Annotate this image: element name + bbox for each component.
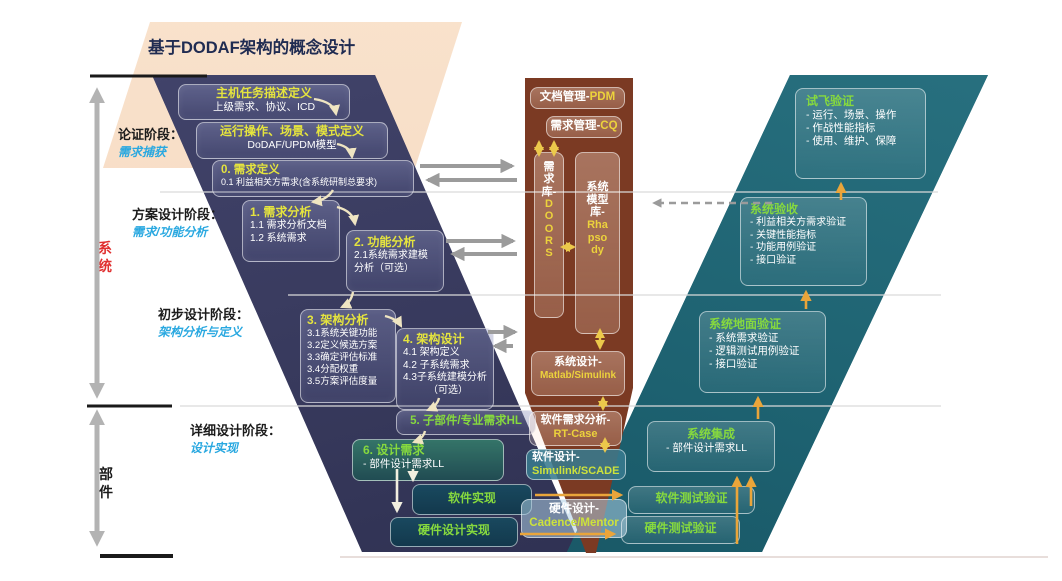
tool-label: 系统设计-: [532, 356, 624, 370]
box-line: - 功能用例验证: [750, 242, 866, 255]
verify-box-flight-test: 试飞验证 - 运行、场景、操作 - 作战性能指标 - 使用、维护、保障: [795, 88, 926, 179]
verify-box-system-ground-verification: 系统地面验证 - 系统需求验证 - 逻辑测试用例验证 - 接口验证: [699, 311, 826, 393]
stage-subtitle: 设计实现: [190, 439, 281, 456]
box-line: （可选）: [403, 385, 493, 398]
box-line: 3.4分配权重: [307, 364, 395, 376]
tool-accent: PDM: [590, 91, 616, 103]
stage-name: 论证阶段：: [118, 124, 183, 143]
box-line: 0.1 利益相关方需求(含系统研制总要求): [221, 177, 413, 188]
flow-box-architecture-analysis: 3. 架构分析 3.1系统关键功能 3.2定义候选方案 3.3确定评估标准 3.…: [300, 309, 396, 403]
tool-label: 软件设计-: [532, 451, 625, 465]
system-level-label: 系统: [98, 240, 115, 275]
tool-box-pdm: 文档管理-PDM: [530, 87, 625, 109]
box-title: 系统集成: [648, 427, 774, 442]
verify-box-system-integration: 系统集成 - 部件设计需求LL: [647, 421, 775, 472]
flow-box-requirement-definition: 0. 需求定义 0.1 利益相关方需求(含系统研制总要求): [212, 160, 414, 197]
tool-label: 硬件设计-: [522, 502, 626, 516]
box-line: DoDAF/UPDM模型: [197, 139, 387, 152]
box-title: 4. 架构设计: [403, 332, 493, 347]
tool-label: 系统模型库-: [585, 181, 610, 219]
verify-box-system-acceptance: 系统验收 - 利益相关方需求验证 - 关键性能指标 - 功能用例验证 - 接口验…: [740, 197, 867, 286]
box-line: 4.2 子系统需求: [403, 360, 493, 373]
stage-label-preliminary-design: 初步设计阶段： 架构分析与定义: [158, 304, 249, 340]
box-line: 3.1系统关键功能: [307, 328, 395, 340]
page-title: 基于DODAF架构的概念设计: [148, 39, 355, 57]
box-title: 主机任务描述定义: [179, 86, 349, 101]
flow-box-requirement-analysis: 1. 需求分析 1.1 需求分析文档 1.2 系统需求: [242, 200, 340, 262]
box-line: 2.1系统需求建模: [354, 250, 443, 263]
component-level-label: 部件: [99, 466, 116, 501]
box-line: - 系统需求验证: [709, 332, 825, 345]
box-title: 硬件设计实现: [391, 523, 517, 538]
stage-name: 初步设计阶段：: [158, 304, 249, 323]
stage-label-detailed-design: 详细设计阶段： 设计实现: [190, 420, 281, 456]
tool-accent: RT-Case: [530, 428, 621, 442]
tool-box-rhapsody: 系统模型库- Rhapsody: [575, 152, 620, 334]
box-title: 2. 功能分析: [354, 235, 443, 250]
flow-box-subcomponent-requirements: 5. 子部件/专业需求HL: [396, 410, 536, 435]
tool-label: 需求管理-: [550, 120, 600, 132]
box-line: - 接口验证: [709, 358, 825, 371]
box-line: - 逻辑测试用例验证: [709, 345, 825, 358]
box-line: 4.1 架构定义: [403, 347, 493, 360]
tool-label: 文档管理-: [540, 91, 590, 103]
box-title: 系统地面验证: [709, 317, 825, 332]
box-title: 5. 子部件/专业需求HL: [397, 414, 535, 428]
box-title: 软件测试验证: [629, 491, 754, 506]
verify-box-software-test: 软件测试验证: [628, 486, 755, 514]
box-title: 试飞验证: [806, 94, 925, 109]
box-title: 0. 需求定义: [221, 163, 413, 177]
tool-box-cq: 需求管理-CQ: [546, 116, 622, 138]
stage-name: 方案设计阶段：: [132, 204, 223, 223]
box-title: 3. 架构分析: [307, 313, 395, 328]
tool-accent: CQ: [600, 120, 617, 132]
stage-name: 详细设计阶段：: [190, 420, 281, 439]
box-title: 1. 需求分析: [250, 205, 339, 220]
tool-box-cadence-mentor: 硬件设计- Cadence/Mentor: [521, 499, 627, 538]
stage-subtitle: 需求/功能分析: [132, 223, 223, 240]
box-line: - 关键性能指标: [750, 230, 866, 243]
tool-accent: Rhapsody: [585, 219, 610, 257]
box-line: - 部件设计需求LL: [648, 442, 774, 455]
box-line: 1.2 系统需求: [250, 233, 339, 246]
flow-box-software-implementation: 软件实现: [412, 484, 532, 515]
tool-accent: DOORS: [542, 198, 557, 260]
box-title: 6. 设计需求: [363, 443, 503, 458]
tool-accent: Cadence/Mentor: [522, 516, 626, 530]
box-title: 硬件测试验证: [622, 521, 739, 536]
flow-box-design-requirements: 6. 设计需求 - 部件设计需求LL: [352, 439, 504, 481]
stage-label-demonstration: 论证阶段： 需求捕获: [118, 124, 183, 160]
tool-box-matlab-simulink: 系统设计- Matlab/Simulink: [531, 351, 625, 396]
tool-accent: Matlab/Simulink: [532, 370, 624, 383]
tool-box-rt-case: 软件需求分析- RT-Case: [529, 411, 622, 446]
box-line: - 运行、场景、操作: [806, 109, 925, 122]
box-line: 上级需求、协议、ICD: [179, 101, 349, 114]
box-title: 软件实现: [413, 491, 531, 506]
verify-box-hardware-test: 硬件测试验证: [621, 516, 740, 544]
tool-box-doors: 需求库- DOORS: [534, 152, 564, 318]
v-model-diagram: 基于DODAF架构的概念设计 论证阶段： 需求捕获 方案设计阶段： 需求/功能分…: [0, 0, 1062, 581]
stage-subtitle: 需求捕获: [118, 143, 183, 160]
flow-box-function-analysis: 2. 功能分析 2.1系统需求建模 分析（可选）: [346, 230, 444, 292]
flow-box-hardware-design-implementation: 硬件设计实现: [390, 517, 518, 547]
box-line: 3.3确定评估标准: [307, 352, 395, 364]
tool-box-scade: 软件设计- Simulink/SCADE: [526, 449, 626, 480]
box-line: 3.2定义候选方案: [307, 340, 395, 352]
flow-box-host-mission: 主机任务描述定义 上级需求、协议、ICD: [178, 84, 350, 120]
box-line: 分析（可选）: [354, 263, 443, 276]
box-line: - 作战性能指标: [806, 122, 925, 135]
tool-accent: Simulink/SCADE: [532, 465, 625, 479]
flow-box-operation-scenario: 运行操作、场景、模式定义 DoDAF/UPDM模型: [196, 122, 388, 159]
box-line: 3.5方案评估度量: [307, 376, 395, 388]
page-title-wrap: 基于DODAF架构的概念设计: [148, 34, 388, 58]
box-line: 4.3子系统建模分析: [403, 372, 493, 385]
box-line: 1.1 需求分析文档: [250, 220, 339, 233]
flow-box-architecture-design: 4. 架构设计 4.1 架构定义 4.2 子系统需求 4.3子系统建模分析 （可…: [396, 328, 494, 410]
tool-label: 需求库-: [542, 161, 557, 198]
tool-label: 软件需求分析-: [530, 414, 621, 428]
stage-label-scheme-design: 方案设计阶段： 需求/功能分析: [132, 204, 223, 240]
box-line: - 利益相关方需求验证: [750, 217, 866, 230]
box-title: 运行操作、场景、模式定义: [197, 124, 387, 139]
box-line: - 使用、维护、保障: [806, 135, 925, 148]
box-line: - 接口验证: [750, 255, 866, 268]
box-line: - 部件设计需求LL: [363, 458, 503, 471]
box-title: 系统验收: [750, 202, 866, 217]
stage-subtitle: 架构分析与定义: [158, 323, 249, 340]
